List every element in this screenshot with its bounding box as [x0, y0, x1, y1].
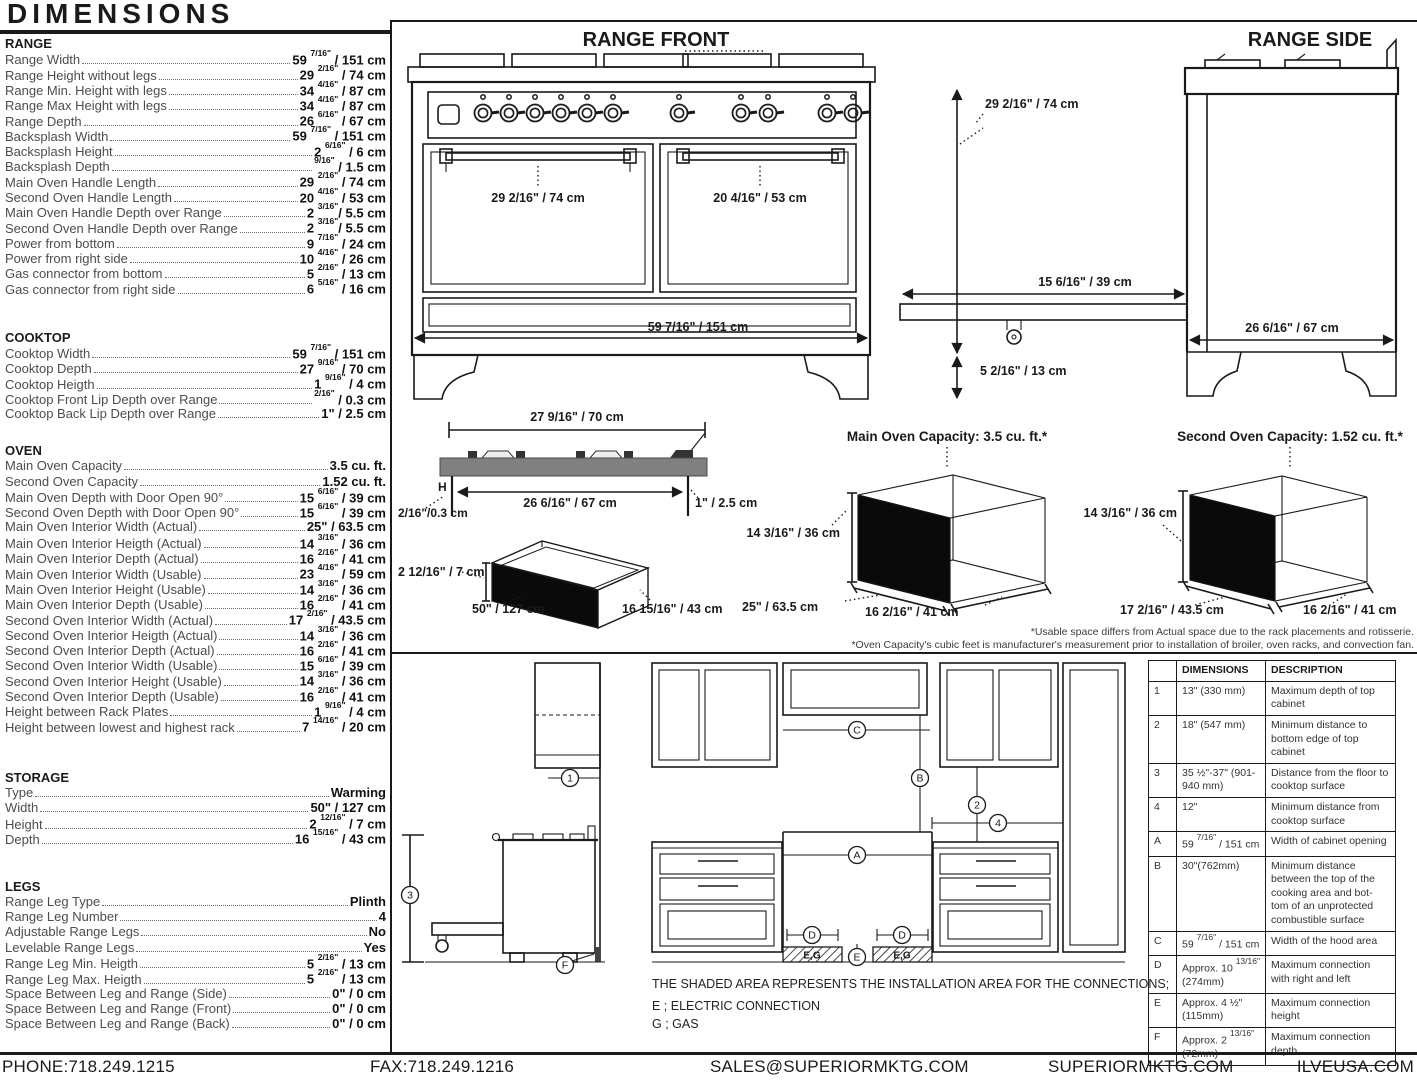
callout-B: B — [912, 770, 929, 787]
spec-label: Second Oven Depth with Door Open 90° — [5, 505, 239, 520]
spec-label: Cooktop Heigth — [5, 377, 95, 392]
side-right-leg — [1342, 352, 1396, 396]
dimensions-table-header: DIMENSIONS DESCRIPTION — [1149, 661, 1396, 682]
spec-row: Cooktop Front Lip Depth over Range2/16" … — [5, 391, 386, 406]
main-oven-depth-dim: 16 2/16" / 41 cm — [865, 605, 959, 619]
spec-value: 16 2/16" / 41 cm — [300, 550, 386, 566]
spec-label: Backsplash Width — [5, 129, 108, 144]
leader-dots — [201, 562, 298, 563]
wall-cabinet-right — [940, 663, 1058, 767]
spec-value: 29 2/16" / 74 cm — [300, 66, 386, 82]
leader-dots — [229, 997, 330, 998]
leader-dots — [204, 578, 298, 579]
spec-label: Backsplash Height — [5, 144, 113, 159]
main-oven-handle — [440, 149, 636, 172]
spec-label: Range Width — [5, 52, 80, 67]
row-key: E — [1149, 993, 1177, 1027]
range-body — [412, 82, 870, 355]
spec-sections: RANGERange Width59 7/16" / 151 cmRange H… — [5, 36, 386, 1031]
range-width-dim: 59 7/16" / 151 cm — [648, 320, 748, 334]
spec-row: Main Oven Interior Depth (Usable)16 2/16… — [5, 596, 386, 611]
footer-rule — [0, 1052, 1417, 1055]
cooktop-h-label: H — [438, 480, 447, 494]
table-row: 218" (547 mm)Minimum distance to bottom … — [1149, 715, 1396, 763]
leader-dots — [112, 170, 312, 171]
row-dimension: 30"(762mm) — [1177, 856, 1266, 931]
spec-section-header: OVEN — [5, 443, 386, 458]
spec-value: 34 4/16" / 87 cm — [300, 82, 386, 98]
burner-knob-icon — [475, 95, 500, 122]
main-oven-width-dim: 25" / 63.5 cm — [742, 600, 818, 614]
svg-text:3: 3 — [407, 890, 413, 902]
callout-1: 1 — [562, 770, 579, 787]
footer-email: SALES@SUPERIORMKTG.COM — [710, 1057, 969, 1077]
spec-value: 59 7/16" / 151 cm — [292, 51, 386, 67]
spec-label: Second Oven Handle Depth over Range — [5, 221, 238, 236]
spec-label: Space Between Leg and Range (Side) — [5, 986, 227, 1001]
spec-value: 15 6/16" / 39 cm — [300, 657, 386, 673]
spec-label: Second Oven Interior Heigth (Actual) — [5, 628, 217, 643]
spec-label: Second Oven Interior Width (Usable) — [5, 658, 217, 673]
spec-label: Second Oven Interior Depth (Usable) — [5, 689, 219, 704]
table-row: B30"(762mm)Minimum distance between the … — [1149, 856, 1396, 931]
callout-2: 2 — [969, 797, 986, 814]
table-row: C59 7/16" / 151 cmWidth of the hood area — [1149, 931, 1396, 955]
spec-value: Yes — [364, 940, 386, 955]
front-left-leg — [414, 355, 478, 399]
callout-A: A — [849, 847, 866, 864]
spec-value: 14 3/16" / 36 cm — [300, 672, 386, 688]
spec-row: Gas connector from right side6 5/16" / 1… — [5, 280, 386, 295]
row-description: Maximum connection with right and left — [1266, 955, 1396, 993]
svg-text:A: A — [853, 850, 860, 862]
row-key: 4 — [1149, 798, 1177, 832]
leader-dots — [158, 186, 298, 187]
warming-drawer-extended — [900, 304, 1187, 344]
burner-grates — [420, 54, 863, 67]
storage-drawer-front — [423, 298, 856, 332]
second-oven-door — [660, 144, 856, 292]
table-row: EApprox. 4 ½" (115mm)Maximum connection … — [1149, 993, 1396, 1027]
spec-label: Range Min. Height with legs — [5, 83, 167, 98]
spec-value: 14 3/16" / 36 cm — [300, 581, 386, 597]
spec-label: Type — [5, 785, 33, 800]
spec-label: Second Oven Capacity — [5, 474, 138, 489]
second-oven-width-dim: 17 2/16" / 43.5 cm — [1120, 603, 1224, 617]
spec-label: Main Oven Handle Length — [5, 175, 156, 190]
svg-text:E: E — [853, 952, 860, 964]
spec-section: OVENMain Oven Capacity3.5 cu. ft.Second … — [5, 443, 386, 733]
svg-text:4: 4 — [995, 818, 1001, 830]
row-dimension: Approx. 4 ½" (115mm) — [1177, 993, 1266, 1027]
control-panel — [428, 92, 856, 138]
spec-label: Main Oven Handle Depth over Range — [5, 205, 222, 220]
dimensions-table: DIMENSIONS DESCRIPTION 113" (330 mm)Maxi… — [1148, 660, 1396, 1066]
leader-dots — [170, 715, 312, 716]
row-dimension: 13" (330 mm) — [1177, 681, 1266, 715]
leader-dots — [219, 639, 297, 640]
burner-knob-icon — [671, 95, 696, 122]
spec-value: 14 3/16" / 36 cm — [300, 535, 386, 551]
drawer-depth-dim: 16 15/16" / 43 cm — [622, 602, 722, 616]
burner-knob-icon — [527, 95, 552, 122]
second-oven-height-dim: 14 3/16" / 36 cm — [1084, 506, 1178, 520]
cooktop-profile-body — [440, 458, 707, 476]
row-dimension: 59 7/16" / 151 cm — [1177, 931, 1266, 955]
leader-dots — [82, 63, 290, 64]
spec-row: Height between lowest and highest rack7 … — [5, 718, 386, 733]
callout-D-right: D — [894, 927, 911, 944]
footer-website: SUPERIORMKTG.COM — [1048, 1057, 1234, 1077]
row-description: Width of cabinet opening — [1266, 832, 1396, 856]
legend-electric: E ; ELECTRIC CONNECTION — [652, 999, 820, 1013]
drawer-extension-dim: 15 6/16" / 39 cm — [1038, 275, 1132, 289]
spec-value: 6 5/16" / 16 cm — [307, 280, 386, 296]
installation-diagram: E,G E,G 1 3 F C B 2 4 A D D E — [398, 658, 1143, 970]
top-rule — [390, 20, 1417, 22]
spec-label: Second Oven Handle Length — [5, 190, 172, 205]
svg-text:C: C — [853, 725, 861, 737]
table-row: 113" (330 mm)Maximum depth of top cabine… — [1149, 681, 1396, 715]
footer-fax: FAX:718.249.1216 — [370, 1057, 514, 1077]
burner-knob-icon — [733, 95, 758, 122]
side-cooktop-band — [1185, 68, 1398, 94]
spec-value: 5 2/16" / 13 cm — [307, 970, 386, 986]
cooktop-burners — [468, 450, 693, 458]
leader-dots — [110, 140, 290, 141]
spec-section: RANGERange Width59 7/16" / 151 cmRange H… — [5, 36, 386, 296]
spec-section-header: LEGS — [5, 879, 386, 894]
spec-label: Power from right side — [5, 251, 128, 266]
title-underline — [0, 30, 392, 34]
spec-value: 0" / 0 cm — [332, 1001, 386, 1016]
spec-value: 4 — [379, 909, 386, 924]
row-description: Maximum connection height — [1266, 993, 1396, 1027]
spec-row: TypeWarming — [5, 785, 386, 800]
cooktop-front-lip-dim: 2/16"/0.3 cm — [398, 506, 468, 520]
burner-knob-icon — [819, 95, 844, 122]
row-description: Minimum distance to bottom edge of top c… — [1266, 715, 1396, 763]
leader-dots — [42, 843, 293, 844]
spec-label: Main Oven Capacity — [5, 458, 122, 473]
spec-value: 14 3/16" / 36 cm — [300, 627, 386, 643]
row-description: Minimum distance from cooktop surface — [1266, 798, 1396, 832]
spec-label: Width — [5, 800, 38, 815]
spec-label: Main Oven Interior Depth (Actual) — [5, 551, 199, 566]
leader-dots — [217, 654, 298, 655]
leader-dots — [115, 155, 312, 156]
svg-text:D: D — [898, 930, 906, 942]
spec-row: Adjustable Range LegsNo — [5, 924, 386, 939]
leader-dots — [144, 983, 305, 984]
spec-row: Space Between Leg and Range (Front)0" / … — [5, 1001, 386, 1016]
spec-label: Second Oven Interior Depth (Actual) — [5, 643, 215, 658]
leader-dots — [169, 94, 298, 95]
dimensions-table-body: 113" (330 mm)Maximum depth of top cabine… — [1149, 681, 1396, 1065]
spec-section: STORAGETypeWarmingWidth50" / 127 cmHeigh… — [5, 770, 386, 846]
spec-value: 15 6/16" / 39 cm — [300, 489, 386, 505]
spec-label: Range Leg Number — [5, 909, 118, 924]
eg-label-right: E,G — [893, 951, 910, 962]
burner-knob-icon — [579, 95, 604, 122]
callout-C: C — [849, 722, 866, 739]
spec-label: Height between Rack Plates — [5, 704, 168, 719]
range-side-drawing: RANGE SIDE 29 2/16" / 74 cm 26 6/16" / 6… — [895, 24, 1417, 404]
leader-dots — [45, 828, 308, 829]
table-row: DApprox. 10 13/16" (274mm)Maximum connec… — [1149, 955, 1396, 993]
second-oven-handle — [677, 149, 844, 163]
col-description: DESCRIPTION — [1266, 661, 1396, 682]
backsplash — [1387, 40, 1396, 68]
table-row: A59 7/16" / 151 cmWidth of cabinet openi… — [1149, 832, 1396, 856]
spec-label: Range Max Height with legs — [5, 98, 167, 113]
leader-dots — [204, 547, 298, 548]
footer-phone: PHONE:718.249.1215 — [2, 1057, 175, 1077]
spec-row: Depth16 15/16" / 43 cm — [5, 830, 386, 845]
row-key: 1 — [1149, 681, 1177, 715]
leader-dots — [224, 216, 305, 217]
leader-dots — [102, 905, 348, 906]
spec-value: 7 14/16" / 20 cm — [302, 718, 386, 734]
row-description: Width of the hood area — [1266, 931, 1396, 955]
callout-E: E — [849, 949, 866, 966]
leader-dots — [208, 593, 298, 594]
svg-text:1: 1 — [567, 773, 573, 785]
control-knobs — [475, 95, 870, 122]
main-handle-dim: 29 2/16" / 74 cm — [491, 191, 585, 205]
spec-label: Range Leg Max. Heigth — [5, 972, 142, 987]
cooktop-band — [408, 67, 875, 82]
spec-label: Space Between Leg and Range (Back) — [5, 1016, 230, 1031]
leader-dots — [237, 731, 300, 732]
spec-row: Second Oven Depth with Door Open 90°15 6… — [5, 504, 386, 519]
row-key: D — [1149, 955, 1177, 993]
hood-top-cabinet — [783, 663, 927, 715]
row-key: 3 — [1149, 763, 1177, 797]
spec-label: Backsplash Depth — [5, 159, 110, 174]
spec-row: Cooktop Back Lip Depth over Range1" / 2.… — [5, 406, 386, 421]
leader-dots — [130, 262, 298, 263]
spec-label: Range Leg Type — [5, 894, 100, 909]
horizontal-divider — [392, 652, 1417, 654]
spec-value: 2/16" / 0.3 cm — [314, 391, 386, 407]
callout-4: 4 — [990, 815, 1007, 832]
spec-label: Height between lowest and highest rack — [5, 720, 235, 735]
leader-dots — [225, 501, 297, 502]
spec-label: Main Oven Interior Depth (Usable) — [5, 597, 203, 612]
burner-knob-icon — [760, 95, 785, 122]
spec-value: 0" / 0 cm — [332, 986, 386, 1001]
leader-dots — [97, 388, 312, 389]
spec-label: Depth — [5, 832, 40, 847]
main-oven-box — [858, 475, 1045, 603]
leader-dots — [178, 293, 305, 294]
leader-dots — [233, 1012, 330, 1013]
leader-dots — [92, 357, 290, 358]
leader-dots — [218, 417, 319, 418]
spec-value: 0" / 0 cm — [332, 1016, 386, 1031]
spec-label: Gas connector from right side — [5, 282, 176, 297]
leader-dots — [165, 277, 305, 278]
base-cabinet-right — [933, 842, 1058, 952]
leader-dots — [35, 796, 329, 797]
spec-value: 15 6/16" / 39 cm — [300, 504, 386, 520]
range-side-install — [432, 826, 600, 962]
spec-label: Power from bottom — [5, 236, 115, 251]
spec-label: Range Depth — [5, 114, 82, 129]
spec-label: Cooktop Back Lip Depth over Range — [5, 406, 216, 421]
row-key: B — [1149, 856, 1177, 931]
spec-row: Space Between Leg and Range (Side)0" / 0… — [5, 986, 386, 1001]
leader-dots — [169, 109, 298, 110]
spec-row: Range Leg TypePlinth — [5, 894, 386, 909]
callout-D-left: D — [804, 927, 821, 944]
spec-value: 3.5 cu. ft. — [330, 458, 386, 473]
leader-dots — [159, 79, 298, 80]
legend-gas: G ; GAS — [652, 1017, 699, 1031]
leader-dots — [84, 125, 298, 126]
hood-cabinet-side — [535, 663, 600, 768]
spec-section: COOKTOPCooktop Width59 7/16" / 151 cmCoo… — [5, 330, 386, 421]
table-row: 335 ½"-37" (901-940 mm)Distance from the… — [1149, 763, 1396, 797]
leader-dots — [205, 608, 298, 609]
row-dimension: 18" (547 mm) — [1177, 715, 1266, 763]
table-row: 412"Minimum distance from cooktop surfac… — [1149, 798, 1396, 832]
drawer-width-dim: 50" / 127 cm — [472, 602, 545, 616]
spec-label: Space Between Leg and Range (Front) — [5, 1001, 231, 1016]
eg-label-left: E,G — [803, 951, 820, 962]
col-dimensions: DIMENSIONS — [1177, 661, 1266, 682]
range-side-title: RANGE SIDE — [1248, 29, 1372, 51]
leader-dots — [40, 811, 308, 812]
leader-dots — [219, 403, 312, 404]
spec-row: Main Oven Capacity3.5 cu. ft. — [5, 458, 386, 473]
spec-label: Main Oven Interior Width (Actual) — [5, 519, 197, 534]
main-oven-drawing: Main Oven Capacity: 3.5 cu. ft.* 14 3/16… — [740, 425, 1080, 620]
row-description: Maximum depth of top cabinet — [1266, 681, 1396, 715]
display — [438, 105, 459, 124]
spec-value: Warming — [331, 785, 386, 800]
spec-label: Main Oven Interior Width (Usable) — [5, 567, 202, 582]
cooktop-inner-width-dim: 26 6/16" / 67 cm — [523, 496, 617, 510]
spec-label: Gas connector from bottom — [5, 266, 163, 281]
row-dimension: 59 7/16" / 151 cm — [1177, 832, 1266, 856]
second-oven-drawing: Second Oven Capacity: 1.52 cu. ft.* 14 3… — [1075, 425, 1417, 620]
leader-dots — [94, 372, 298, 373]
svg-text:2: 2 — [974, 800, 980, 812]
leader-dots — [219, 669, 297, 670]
spec-value: No — [369, 924, 386, 939]
spec-label: Main Oven Interior Heigth (Actual) — [5, 536, 202, 551]
leader-dots — [117, 247, 305, 248]
spec-label: Second Oven Interior Width (Actual) — [5, 613, 213, 628]
row-dimension: 35 ½"-37" (901-940 mm) — [1177, 763, 1266, 797]
leader-dots — [224, 685, 298, 686]
row-description: Minimum distance between the top of the … — [1266, 856, 1396, 931]
callout-3: 3 — [402, 887, 419, 904]
second-oven-title: Second Oven Capacity: 1.52 cu. ft.* — [1177, 429, 1404, 444]
leader-dots — [232, 1027, 330, 1028]
spec-value: 34 4/16" / 87 cm — [300, 97, 386, 113]
side-height-dim: 29 2/16" / 74 cm — [985, 97, 1079, 111]
connection-strip — [595, 947, 600, 962]
spec-section-header: STORAGE — [5, 770, 386, 785]
leader-dots — [221, 700, 298, 701]
main-oven-title: Main Oven Capacity: 3.5 cu. ft.* — [847, 429, 1048, 444]
leader-dots — [174, 201, 298, 202]
spec-value: 29 2/16" / 74 cm — [300, 173, 386, 189]
wall-cabinet-left — [652, 663, 777, 767]
row-description: Distance from the floor to cooktop surfa… — [1266, 763, 1396, 797]
burner-knob-icon — [553, 95, 578, 122]
second-oven-depth-dim: 16 2/16" / 41 cm — [1303, 603, 1397, 617]
spec-label: Second Oven Interior Height (Usable) — [5, 674, 222, 689]
main-oven-height-dim: 14 3/16" / 36 cm — [747, 526, 841, 540]
spec-label: Cooktop Width — [5, 346, 90, 361]
second-oven-box — [1190, 476, 1367, 601]
range-front-title: RANGE FRONT — [583, 29, 730, 51]
svg-text:D: D — [808, 930, 816, 942]
row-key: C — [1149, 931, 1177, 955]
leader-dots — [141, 935, 366, 936]
spec-row: Range Leg Number4 — [5, 909, 386, 924]
leader-dots — [140, 967, 305, 968]
callout-F: F — [557, 957, 574, 974]
vertical-divider — [390, 20, 392, 1052]
side-left-leg — [1187, 352, 1241, 396]
row-dimension: 12" — [1177, 798, 1266, 832]
spec-label: Adjustable Range Legs — [5, 924, 139, 939]
footer-brand-site: ILVEUSA.COM — [1297, 1057, 1414, 1077]
spec-row: Space Between Leg and Range (Back)0" / 0… — [5, 1016, 386, 1031]
spec-section: LEGSRange Leg TypePlinthRange Leg Number… — [5, 879, 386, 1032]
svg-text:B: B — [916, 773, 923, 785]
leader-dots — [240, 232, 305, 233]
cooktop-top-width-dim: 27 9/16" / 70 cm — [530, 410, 624, 424]
footnote-1: *Usable space differs from Actual space … — [714, 626, 1414, 638]
spec-label: Range Leg Min. Heigth — [5, 956, 138, 971]
drawer-height-dim: 2 12/16" / 7 cm — [398, 565, 485, 579]
spec-label: Cooktop Depth — [5, 361, 92, 376]
row-key: A — [1149, 832, 1177, 856]
leader-dots — [120, 920, 376, 921]
leg-height-dim: 5 2/16" / 13 cm — [980, 364, 1067, 378]
front-right-leg — [804, 355, 868, 399]
leader-dots — [215, 624, 287, 625]
leader-dots — [140, 485, 320, 486]
burner-knob-icon — [605, 95, 630, 122]
row-key: 2 — [1149, 715, 1177, 763]
spec-sheet-page: DIMENSIONS RANGERange Width59 7/16" / 15… — [0, 0, 1417, 1080]
row-dimension: Approx. 10 13/16" (274mm) — [1177, 955, 1266, 993]
base-cabinet-left — [652, 842, 782, 952]
side-depth-dim: 26 6/16" / 67 cm — [1245, 321, 1339, 335]
leader-dots — [241, 516, 297, 517]
spec-label: Range Height without legs — [5, 68, 157, 83]
leader-dots — [124, 469, 328, 470]
spec-value: 23 4/16" / 59 cm — [300, 565, 386, 581]
burner-knob-icon — [501, 95, 526, 122]
spec-value: 59 7/16" / 151 cm — [292, 345, 386, 361]
spec-value: 1" / 2.5 cm — [321, 406, 386, 421]
spec-label: Cooktop Front Lip Depth over Range — [5, 392, 217, 407]
spec-label: Levelable Range Legs — [5, 940, 134, 955]
spec-row: Range Leg Max. Heigth5 2/16" / 13 cm — [5, 970, 386, 985]
footnote-2: *Oven Capacity's cubic feet is manufactu… — [714, 639, 1414, 651]
second-handle-dim: 20 4/16" / 53 cm — [713, 191, 807, 205]
installation-note: THE SHADED AREA REPRESENTS THE INSTALLAT… — [652, 977, 1169, 991]
spec-label: Main Oven Interior Height (Usable) — [5, 582, 206, 597]
